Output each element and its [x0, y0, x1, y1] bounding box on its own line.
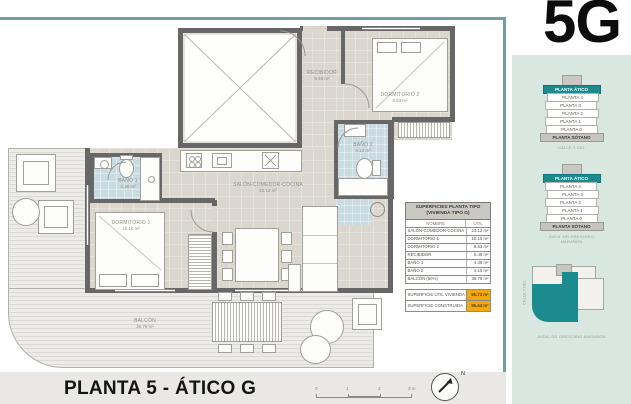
table-row: SALÓN-COMEDOR-COCINA23.12 m² [405, 228, 491, 236]
pillow [377, 42, 397, 53]
chair [222, 250, 233, 263]
wall [450, 26, 455, 122]
surfaces-table-header-row: NOMBRE ÚTIL [405, 220, 491, 228]
shower [140, 157, 160, 201]
chair [240, 292, 254, 301]
window [362, 27, 420, 30]
room-label-bano2: BAÑO 24.10 m² [353, 142, 373, 153]
site-plan-caption: AVDA. DR GREGORIO MARAÑÓN [512, 334, 631, 339]
pillow [99, 274, 127, 287]
chair [281, 250, 292, 263]
washbasin [94, 157, 112, 169]
north-arrow-icon [431, 373, 459, 401]
outdoor-side-table [12, 198, 40, 226]
level-stack-1: PLANTA ÁTICO PLANTA 4 PLANTA 3 PLANTA 2 … [539, 75, 605, 150]
chair [222, 268, 233, 281]
washbasin [344, 124, 366, 137]
table-row: RECIBIDOR5.48 m² [405, 252, 491, 260]
sofa-chaise [288, 264, 301, 292]
toilet-tank [120, 155, 133, 160]
toilet [119, 159, 134, 178]
table-row: BAÑO 14.38 m² [405, 260, 491, 268]
sheet-title: PLANTA 5 - ÁTICO G [64, 378, 256, 400]
chair [262, 292, 276, 301]
door-gap [212, 206, 217, 232]
room-label-recibidor: RECIBIDOR5.48 m² [307, 70, 337, 81]
stack1-level-sotano: PLANTA SÓTANO [540, 133, 604, 142]
table-row: BAÑO 24.10 m² [405, 268, 491, 276]
unit-code: 5G [543, 0, 621, 56]
room-label-dormitorio1: DORMITORIO 110.10 m² [112, 220, 151, 231]
stack2-caption: AVDA. DR GREGORIO MARAÑÓN [539, 234, 605, 244]
table-row: BALCÓN (50%)38.78 m² [405, 276, 491, 284]
laundry-floor [336, 197, 372, 225]
table-row: DORMITORIO 110.10 m² [405, 236, 491, 244]
table-row: DORMITORIO 28.53 m² [405, 244, 491, 252]
stack-side-tab [598, 89, 607, 123]
pillow [401, 42, 421, 53]
floor-plan: RECIBIDOR5.48 m² DORMITORIO 28.53 m² BAÑ… [0, 20, 503, 372]
sink-icon [212, 153, 232, 168]
wardrobe [188, 234, 212, 290]
room-label-dormitorio2: DORMITORIO 28.53 m² [381, 92, 420, 103]
room-label-bano1: BAÑO 14.38 m² [118, 178, 138, 189]
scale-bar: 0 1 2 3 m [316, 386, 420, 400]
site-building-outline [574, 278, 604, 310]
outdoor-armchair [16, 154, 56, 192]
wardrobe [398, 122, 450, 138]
sidebar: PLANTA ÁTICO PLANTA 4 PLANTA 3 PLANTA 2 … [512, 55, 631, 404]
summary-row-util: SUPERFICIE ÚTIL VIVIENDA55.73 m² [405, 289, 491, 301]
room-label-balcon: BALCÓN38.78 m² [134, 318, 156, 329]
outdoor-armchair [38, 200, 74, 234]
hob-icon [186, 153, 202, 168]
planter [300, 335, 331, 364]
window [86, 185, 89, 245]
chair [240, 344, 254, 353]
dining-table [235, 228, 279, 282]
vent-icon [262, 152, 279, 169]
chair [262, 344, 276, 353]
chair [222, 232, 233, 245]
summary-row-construida: SUPERFICIE CONSTRUIDA95.44 m² [405, 301, 491, 312]
site-plan: CALLE 3 DEL [526, 264, 618, 330]
site-plan-side-street-label: CALLE 3 DEL [521, 261, 526, 325]
surfaces-table: SUPERFICIES PLANTA TIPO (VIVIENDA TIPO G… [405, 202, 491, 312]
washer-icon [370, 202, 385, 217]
shower [338, 178, 388, 196]
chair [218, 292, 232, 301]
stack2-level-sotano: PLANTA SÓTANO [540, 222, 604, 231]
chair [218, 344, 232, 353]
plan-frame-right-border [503, 17, 506, 372]
surfaces-table-title: SUPERFICIES PLANTA TIPO (VIVIENDA TIPO G… [405, 202, 491, 220]
level-stack-2: PLANTA ÁTICO PLANTA 4 PLANTA 3 PLANTA 2 … [539, 164, 605, 244]
north-label: N [461, 371, 465, 377]
entry-door-gap [303, 26, 327, 31]
stair-core [178, 28, 302, 148]
stack1-caption: CALLE 3 DEL [539, 145, 605, 150]
wall [160, 198, 215, 203]
stack-side-tab [598, 178, 607, 212]
room-label-salon: SALÓN-COMEDOR-COCINA23.12 m² [233, 182, 303, 193]
toilet [356, 158, 373, 179]
outdoor-dining-table [212, 302, 282, 342]
toilet-tank [372, 160, 381, 176]
chair [281, 232, 292, 245]
site-unit-highlight [532, 284, 578, 322]
sofa [302, 206, 338, 292]
outdoor-armchair [352, 298, 382, 330]
pillow [131, 274, 159, 287]
wall [341, 26, 345, 84]
